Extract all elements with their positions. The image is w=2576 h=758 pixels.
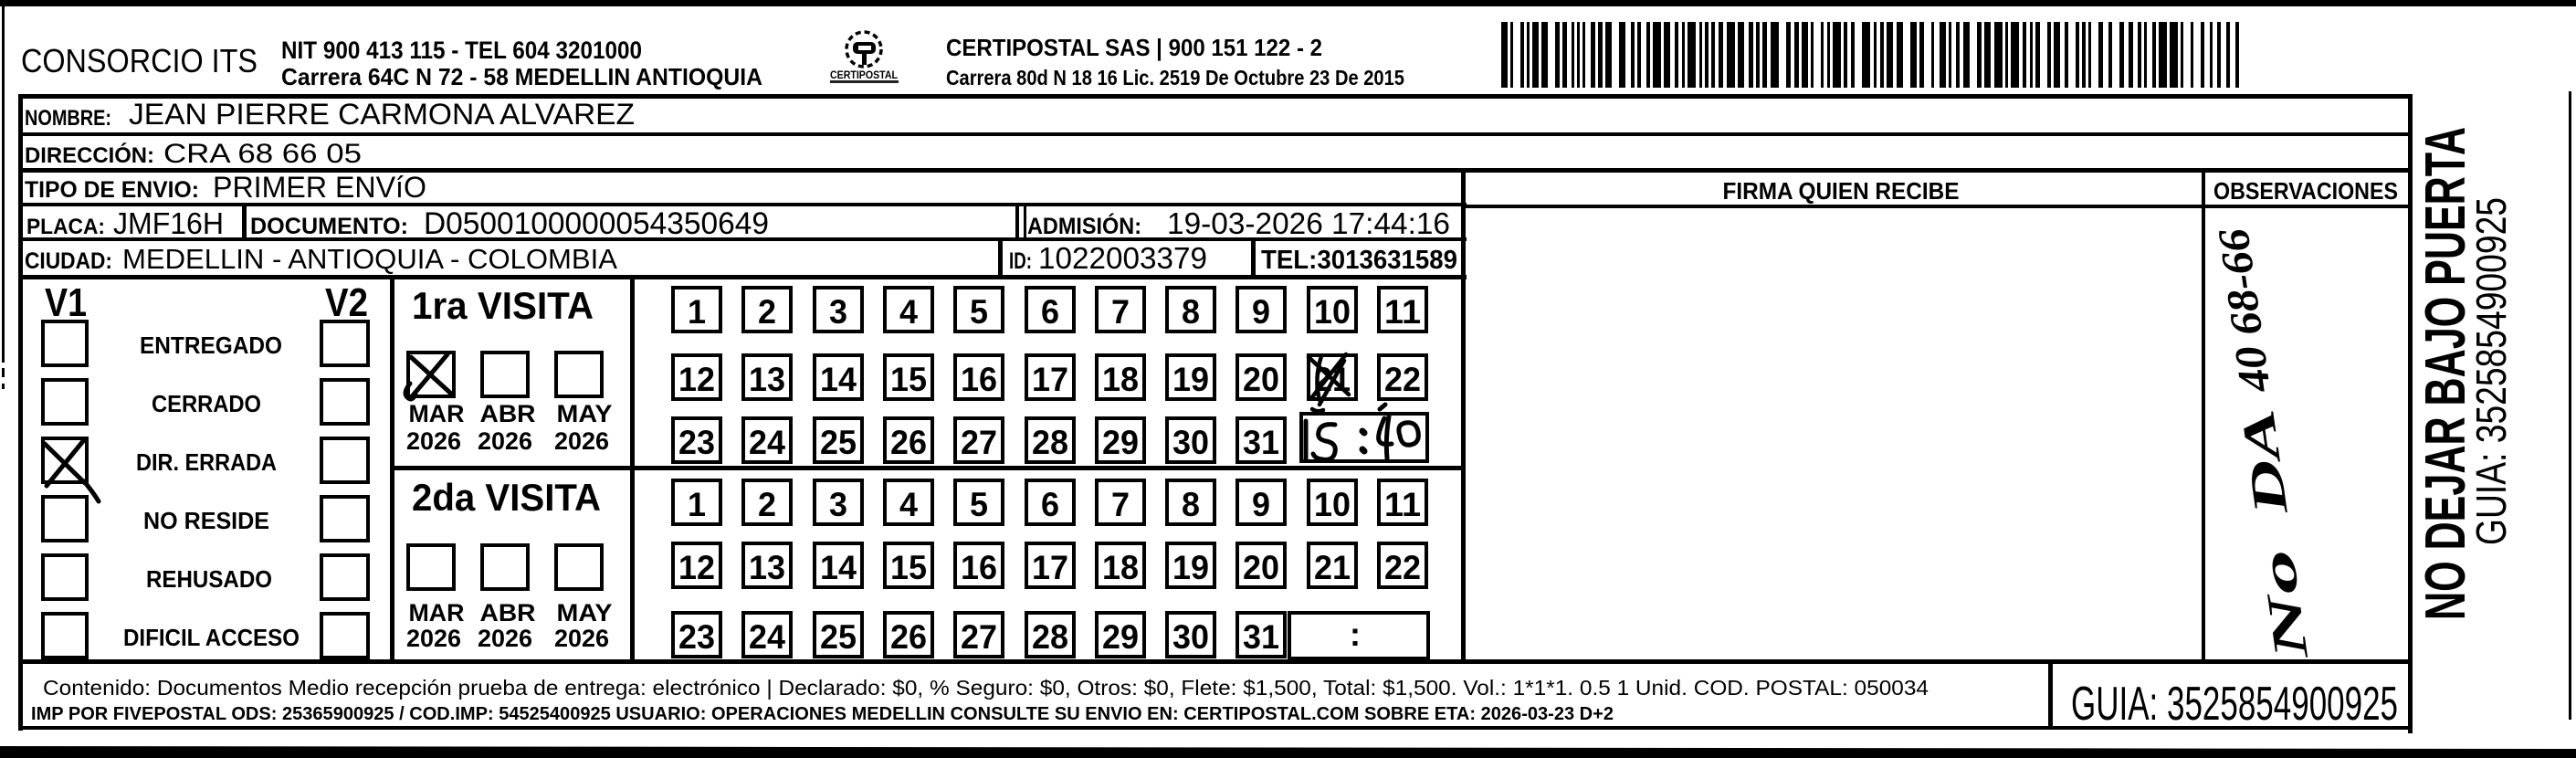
- svg-text:DIRECCIÓN:: DIRECCIÓN:: [25, 142, 154, 168]
- svg-text:V1: V1: [45, 280, 87, 325]
- svg-text:V2: V2: [325, 280, 368, 325]
- svg-text:JEAN PIERRE CARMONA ALVAREZ: JEAN PIERRE CARMONA ALVAREZ: [129, 98, 635, 131]
- svg-text:CIUDAD:: CIUDAD:: [25, 248, 112, 274]
- svg-text:16: 16: [961, 549, 997, 586]
- svg-text:2026: 2026: [478, 625, 532, 652]
- svg-text:TEL:3013631589: TEL:3013631589: [1261, 246, 1457, 275]
- svg-text:9: 9: [1252, 293, 1270, 331]
- svg-text:11: 11: [1384, 486, 1421, 523]
- svg-text:23: 23: [678, 424, 715, 461]
- svg-text:MAR: MAR: [409, 400, 465, 427]
- svg-text:15: 15: [890, 549, 927, 586]
- svg-text:1: 1: [688, 486, 706, 523]
- svg-text:14: 14: [820, 361, 857, 398]
- svg-text:13: 13: [749, 549, 785, 586]
- svg-text:31: 31: [1243, 424, 1279, 461]
- svg-text:1022003379: 1022003379: [1038, 241, 1207, 275]
- svg-text:24: 24: [749, 618, 785, 656]
- svg-text:PLACA:: PLACA:: [26, 215, 105, 239]
- svg-text:No: No: [2252, 546, 2318, 664]
- svg-text:28: 28: [1032, 618, 1068, 656]
- svg-text:2026: 2026: [406, 427, 461, 455]
- svg-text:2026: 2026: [406, 625, 461, 652]
- svg-text:31: 31: [1243, 618, 1279, 656]
- svg-text:FIRMA QUIEN RECIBE: FIRMA QUIEN RECIBE: [1723, 177, 1960, 205]
- svg-text:8: 8: [1182, 293, 1200, 331]
- svg-text:Carrera 64C N 72 - 58 MEDELLIN: Carrera 64C N 72 - 58 MEDELLIN ANTIOQUIA: [281, 63, 762, 90]
- svg-text:DIR. ERRADA: DIR. ERRADA: [136, 448, 277, 476]
- svg-text:2026: 2026: [554, 625, 609, 652]
- svg-text:ID:: ID:: [1009, 248, 1032, 274]
- svg-text:2da VISITA: 2da VISITA: [412, 476, 601, 519]
- svg-text:JMF16H: JMF16H: [113, 206, 224, 240]
- svg-text:CERRADO: CERRADO: [152, 390, 261, 417]
- svg-text:PRIMER ENVíO: PRIMER ENVíO: [213, 171, 426, 204]
- svg-text:23: 23: [678, 618, 715, 656]
- svg-text:CONSORCIO ITS: CONSORCIO ITS: [21, 42, 258, 79]
- svg-text:6: 6: [1041, 293, 1059, 331]
- svg-text:40 68-66: 40 68-66: [2209, 226, 2280, 396]
- svg-text:ABR: ABR: [480, 599, 536, 626]
- svg-text:1ra VISITA: 1ra VISITA: [412, 284, 594, 327]
- svg-text:22: 22: [1384, 361, 1421, 398]
- svg-text:27: 27: [961, 618, 997, 656]
- svg-text:Contenido: Documentos Medio re: Contenido: Documentos Medio recepción pr…: [43, 676, 1929, 700]
- svg-text:11: 11: [1384, 293, 1421, 331]
- svg-text:4: 4: [899, 486, 918, 523]
- svg-text:29: 29: [1102, 424, 1139, 461]
- svg-text:5: 5: [970, 293, 988, 331]
- svg-text:8: 8: [1182, 486, 1200, 523]
- svg-text:CRA 68 66 05: CRA 68 66 05: [163, 139, 362, 169]
- svg-text:CERTIPOSTAL: CERTIPOSTAL: [830, 68, 898, 81]
- svg-text:2: 2: [758, 293, 776, 331]
- svg-text:24: 24: [749, 424, 785, 461]
- svg-text:10: 10: [1314, 293, 1351, 331]
- svg-text:ABR: ABR: [480, 400, 536, 427]
- svg-text:10: 10: [1314, 486, 1351, 523]
- svg-text:3: 3: [829, 293, 847, 331]
- svg-text:2026: 2026: [478, 427, 532, 455]
- svg-text:17: 17: [1032, 361, 1068, 398]
- svg-text:26: 26: [890, 618, 927, 656]
- svg-text:27: 27: [961, 424, 997, 461]
- svg-text:18: 18: [1102, 361, 1139, 398]
- svg-text:D0500100000054350649: D0500100000054350649: [424, 206, 769, 241]
- svg-text:16: 16: [961, 361, 997, 398]
- svg-text:25: 25: [820, 424, 857, 461]
- svg-text:5: 5: [970, 486, 988, 523]
- svg-text:2026: 2026: [554, 427, 609, 455]
- svg-text:30: 30: [1172, 424, 1209, 461]
- svg-text:DOCUMENTO:: DOCUMENTO:: [250, 214, 408, 239]
- svg-text:18: 18: [1102, 549, 1139, 586]
- svg-text:12: 12: [678, 361, 715, 398]
- svg-text:ADMISIÓN:: ADMISIÓN:: [1027, 212, 1141, 239]
- svg-text:NIT 900 413 115 - TEL 604 3201: NIT 900 413 115 - TEL 604 3201000: [281, 37, 642, 64]
- svg-text:19: 19: [1172, 361, 1209, 398]
- svg-text:19-03-2026 17:44:16: 19-03-2026 17:44:16: [1167, 206, 1450, 240]
- svg-text:ENTREGADO: ENTREGADO: [140, 332, 282, 359]
- svg-text:20: 20: [1243, 549, 1279, 586]
- svg-text:GUIA: 3525854900925: GUIA: 3525854900925: [2467, 197, 2515, 545]
- svg-text:MAY: MAY: [557, 400, 613, 427]
- svg-text:22: 22: [1384, 549, 1421, 586]
- svg-text:MAY: MAY: [557, 599, 613, 626]
- svg-text:4: 4: [899, 293, 918, 331]
- svg-text:GUIA: 3525854900925: GUIA: 3525854900925: [2071, 678, 2398, 731]
- svg-text:DA: DA: [2232, 406, 2298, 519]
- svg-text:REHUSADO: REHUSADO: [146, 565, 272, 593]
- svg-text:17: 17: [1032, 549, 1068, 586]
- svg-text:12: 12: [678, 549, 715, 586]
- svg-text:13: 13: [749, 361, 785, 398]
- svg-text:26: 26: [890, 424, 927, 461]
- svg-text:20: 20: [1243, 361, 1279, 398]
- svg-text:28: 28: [1032, 424, 1068, 461]
- svg-text:3: 3: [829, 486, 847, 523]
- svg-text:MEDELLIN - ANTIOQUIA - COLOMBI: MEDELLIN - ANTIOQUIA - COLOMBIA: [122, 243, 617, 275]
- svg-text:IMP POR FIVEPOSTAL ODS: 253659: IMP POR FIVEPOSTAL ODS: 25365900925 / CO…: [31, 704, 1614, 724]
- svg-text:Carrera 80d N 18 16 Lic. 2519: Carrera 80d N 18 16 Lic. 2519 De Octubre…: [946, 66, 1404, 89]
- svg-text:DIFICIL ACCESO: DIFICIL ACCESO: [123, 624, 300, 651]
- svg-text:7: 7: [1111, 486, 1130, 523]
- svg-text:CERTIPOSTAL SAS | 900 151 122: CERTIPOSTAL SAS | 900 151 122 - 2: [946, 34, 1322, 61]
- svg-text::: :: [1350, 616, 1361, 653]
- svg-text:2: 2: [758, 486, 776, 523]
- svg-text:30: 30: [1172, 618, 1209, 656]
- svg-text:9: 9: [1252, 486, 1270, 523]
- svg-text:14: 14: [820, 549, 857, 586]
- svg-text:21: 21: [1314, 549, 1351, 586]
- svg-text:NO RESIDE: NO RESIDE: [143, 507, 269, 534]
- svg-text:25: 25: [820, 618, 857, 656]
- svg-text:NOMBRE:: NOMBRE:: [25, 106, 111, 131]
- svg-text:TIPO DE ENVIO:: TIPO DE ENVIO:: [25, 177, 199, 203]
- svg-text:19: 19: [1172, 549, 1209, 586]
- svg-text:15: 15: [890, 361, 927, 398]
- svg-text:OBSERVACIONES: OBSERVACIONES: [2213, 177, 2398, 205]
- svg-text:1: 1: [688, 293, 706, 331]
- svg-text:29: 29: [1102, 618, 1139, 656]
- svg-text:6: 6: [1041, 486, 1059, 523]
- svg-text:7: 7: [1111, 293, 1130, 331]
- svg-text:MAR: MAR: [409, 599, 465, 626]
